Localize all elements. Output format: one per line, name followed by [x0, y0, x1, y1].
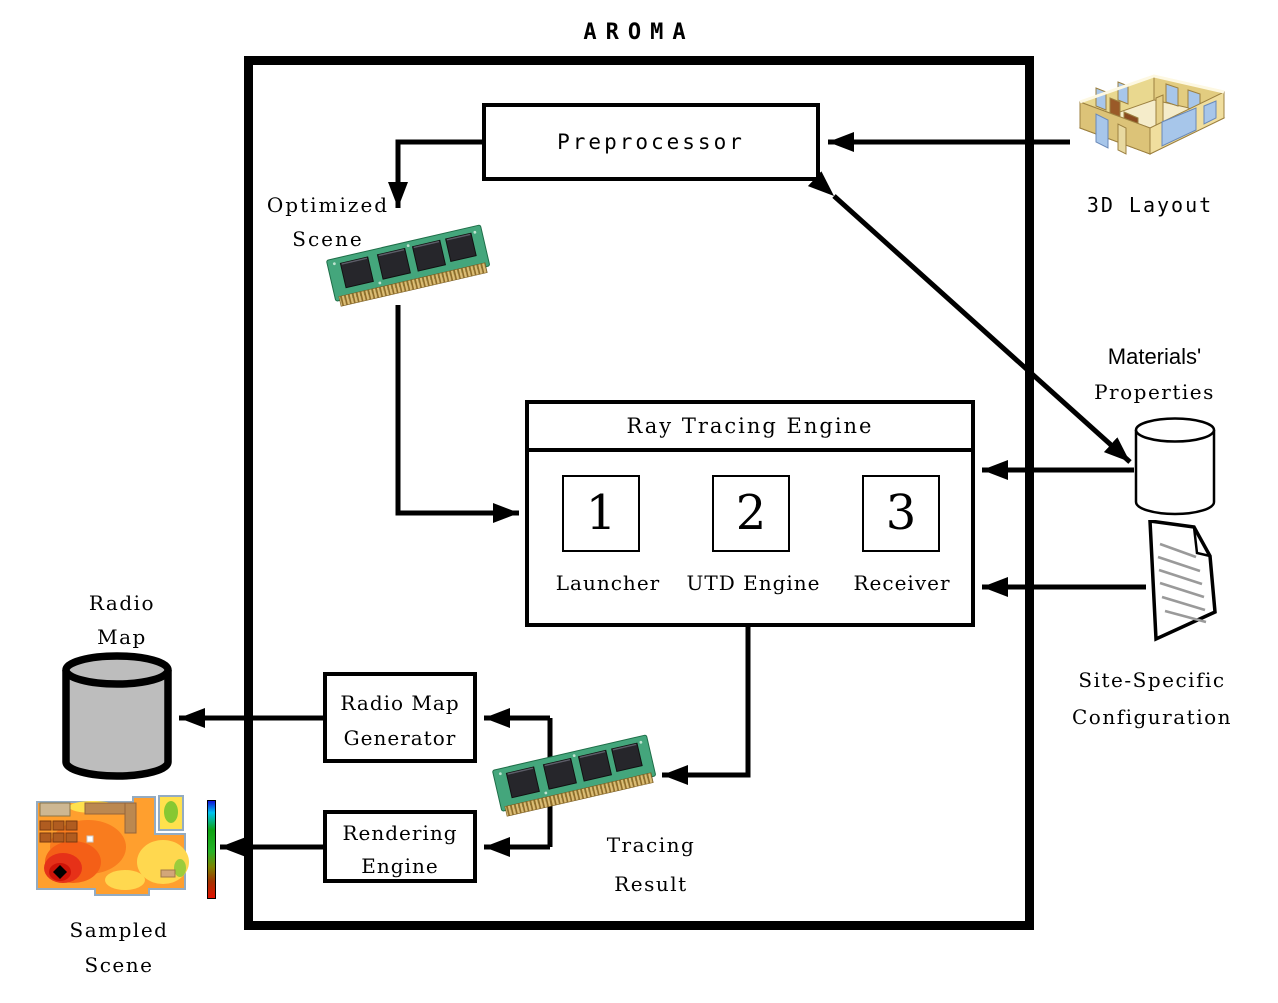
materials-database-icon	[1134, 416, 1216, 516]
receiver-label: Receiver	[841, 571, 963, 595]
launcher-step-box: 1	[562, 475, 640, 552]
radio-map-database-icon	[60, 650, 174, 786]
utd-engine-label: UTD Engine	[671, 571, 836, 595]
preprocessor-label: Preprocessor	[557, 130, 745, 154]
radio-map-label: Radio Map	[70, 586, 174, 654]
preprocessor-box: Preprocessor	[482, 103, 820, 181]
aroma-architecture-diagram: AROMA Preprocessor Optimized Scene Ray T…	[0, 0, 1278, 1003]
site-specific-label: Site-Specific Configuration	[1057, 662, 1247, 736]
tracing-result-label: Tracing Result	[590, 826, 712, 904]
materials-label-line1: Materials'	[1082, 344, 1227, 370]
materials-label-line2: Properties	[1082, 380, 1227, 404]
receiver-step-box: 3	[862, 475, 940, 552]
diagram-title: AROMA	[244, 20, 1034, 45]
utd-engine-step-box: 2	[712, 475, 790, 552]
radio-map-generator-box: Radio Map Generator	[323, 672, 477, 763]
ray-tracing-engine-box: Ray Tracing Engine 1 2 3 Launcher UTD En…	[525, 400, 975, 627]
signal-strength-colorbar	[207, 800, 216, 899]
sampled-scene-heatmap-icon	[33, 792, 205, 900]
rendering-engine-box: Rendering Engine	[323, 810, 477, 883]
sampled-scene-label: Sampled Scene	[54, 913, 184, 983]
building-3d-layout-icon	[1066, 70, 1234, 182]
launcher-label: Launcher	[543, 571, 673, 595]
layout-3d-label: 3D Layout	[1075, 193, 1225, 217]
site-config-document-icon	[1142, 520, 1222, 660]
ray-tracing-engine-title: Ray Tracing Engine	[529, 404, 971, 452]
